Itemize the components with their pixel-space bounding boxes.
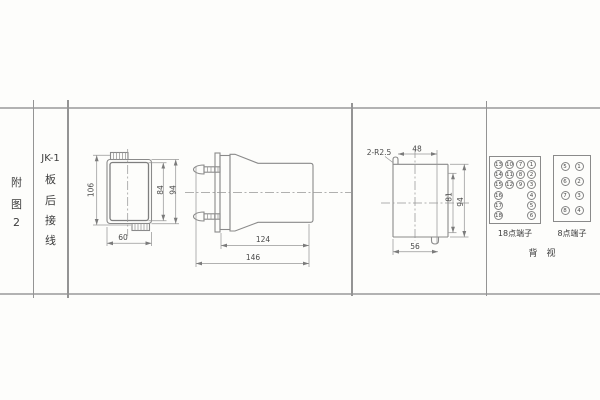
terminal-circle: 14	[494, 170, 503, 179]
dimension-106: 106	[87, 155, 132, 225]
terminal-circle: 18	[494, 211, 503, 220]
note-text-2-R2.5: 2-R2.5	[367, 148, 392, 157]
terminal-circle: 15	[494, 180, 503, 189]
dim-text-146: 146	[246, 253, 261, 262]
terminal-circle: 10	[505, 160, 514, 169]
dim-text-56: 56	[410, 242, 420, 251]
figure-subtitle-char: 后	[33, 192, 68, 208]
terminal-circle: 5	[527, 201, 536, 210]
side-view-drawing: 124 146	[185, 140, 355, 275]
terminal-circle: 6	[527, 211, 536, 220]
dimension-60: 60	[107, 227, 152, 246]
terminal-circle: 11	[505, 170, 514, 179]
cutout-outline	[381, 149, 469, 244]
terminal-circle: 16	[494, 191, 503, 200]
dim-text-60: 60	[118, 233, 128, 242]
terminal-circle: 7	[561, 191, 570, 200]
terminal-circle: 4	[575, 206, 584, 215]
dim-text-94: 94	[169, 185, 178, 195]
relay-front-outline	[107, 149, 152, 236]
mounting-hook-top	[393, 157, 398, 237]
terminal-circle: 2	[527, 170, 536, 179]
terminal-circle: 3	[575, 191, 584, 200]
terminal-circle: 12	[505, 180, 514, 189]
terminal-circle: 6	[561, 177, 570, 186]
dim-text-124: 124	[256, 235, 271, 244]
terminal-circle: 5	[561, 162, 570, 171]
terminal-circle: 8	[516, 170, 525, 179]
terminal-circle: 13	[494, 160, 503, 169]
bottom-border-line	[0, 293, 600, 295]
terminal-circle: 17	[494, 201, 503, 210]
terminal-circle: 9	[516, 180, 525, 189]
dim-text-48: 48	[412, 145, 422, 154]
radius-note: 2-R2.5	[367, 148, 394, 163]
mounting-hook-bottom	[432, 237, 439, 244]
drawing-sheet: 附 图 2 JK-1 板 后 接 线 106	[0, 0, 600, 400]
row-label-char: 图	[0, 196, 33, 212]
terminal-circle: 8	[561, 206, 570, 215]
terminal-18pt-label: 18点端子	[487, 228, 543, 239]
terminal-block-8pt: 5 1 6 2 7 3 8 4	[553, 155, 591, 222]
terminal-circle: 1	[575, 162, 584, 171]
dim-text-84: 84	[156, 185, 165, 195]
terminal-circle: 1	[527, 160, 536, 169]
figure-subtitle-char: 板	[33, 171, 68, 187]
terminal-8pt-label: 8点端子	[551, 228, 593, 239]
top-border-line	[0, 107, 600, 109]
divider-terminals	[486, 101, 488, 296]
dim-text-81: 81	[445, 192, 454, 202]
terminal-screw	[194, 212, 221, 221]
figure-subtitle-char: 接	[33, 212, 68, 228]
terminal-circle: 3	[527, 180, 536, 189]
row-label-char: 2	[0, 216, 33, 229]
figure-subtitle-char: 线	[33, 232, 68, 248]
terminal-circle: 4	[527, 191, 536, 200]
terminal-circle: 7	[516, 160, 525, 169]
dim-text-106: 106	[87, 183, 96, 198]
cutout-view-drawing: 2-R2.5 48 81 94 56	[355, 140, 485, 265]
figure-title: JK-1	[33, 153, 68, 164]
dimension-48: 48	[398, 145, 437, 155]
dim-text-94: 94	[456, 197, 465, 207]
terminal-block-18pt: 13 10 7 1 14 11 8 2 15 12 9 3 16 4 17 5 …	[489, 156, 541, 224]
relay-side-outline	[185, 153, 352, 232]
row-label-char: 附	[0, 174, 33, 190]
dimension-146: 146	[196, 166, 309, 267]
rear-view-label: 背 视	[502, 246, 582, 259]
front-view-drawing: 106 84 94 60	[80, 140, 185, 250]
terminal-screw	[194, 165, 221, 174]
terminal-circle: 2	[575, 177, 584, 186]
